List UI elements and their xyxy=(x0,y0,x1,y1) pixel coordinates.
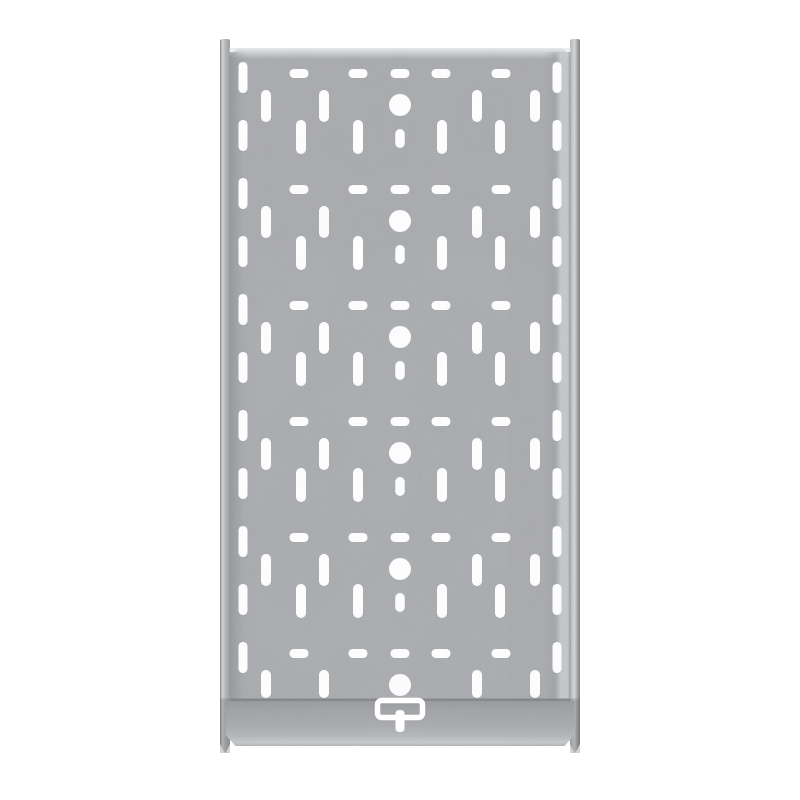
product-photo xyxy=(0,0,800,800)
bracket-stem-cutout xyxy=(396,710,405,732)
right-side-rail xyxy=(570,39,580,753)
left-side-rail xyxy=(220,39,230,753)
metal-grain-texture xyxy=(230,48,571,746)
cable-tray-image xyxy=(0,0,800,800)
